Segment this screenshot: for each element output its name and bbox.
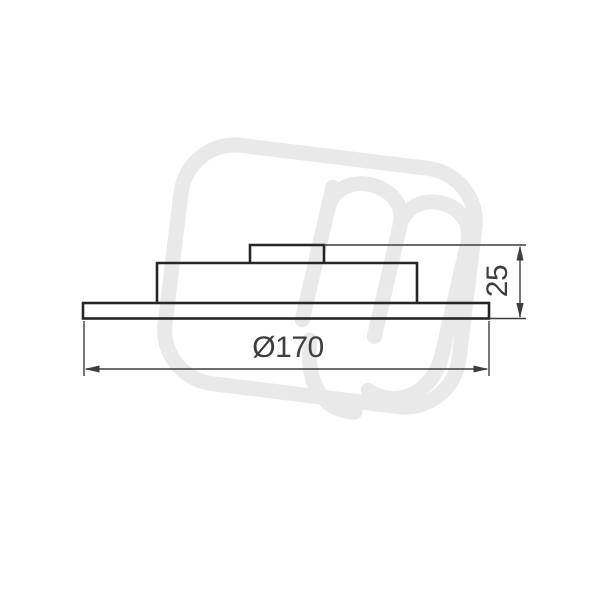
dimension-drawing-canvas: Ø170 25 bbox=[0, 0, 600, 600]
arrow-down-icon bbox=[516, 303, 523, 318]
fixture-outline bbox=[83, 245, 489, 319]
arrow-right-icon bbox=[474, 366, 489, 373]
drawing-svg: Ø170 25 bbox=[0, 0, 600, 600]
diameter-dimension-label: Ø170 bbox=[252, 331, 323, 364]
arrow-up-icon bbox=[516, 246, 523, 261]
height-dimension-label: 25 bbox=[481, 265, 514, 297]
watermark-logo bbox=[158, 139, 481, 429]
arrow-left-icon bbox=[85, 366, 100, 373]
fixture-base-disc bbox=[83, 303, 489, 319]
